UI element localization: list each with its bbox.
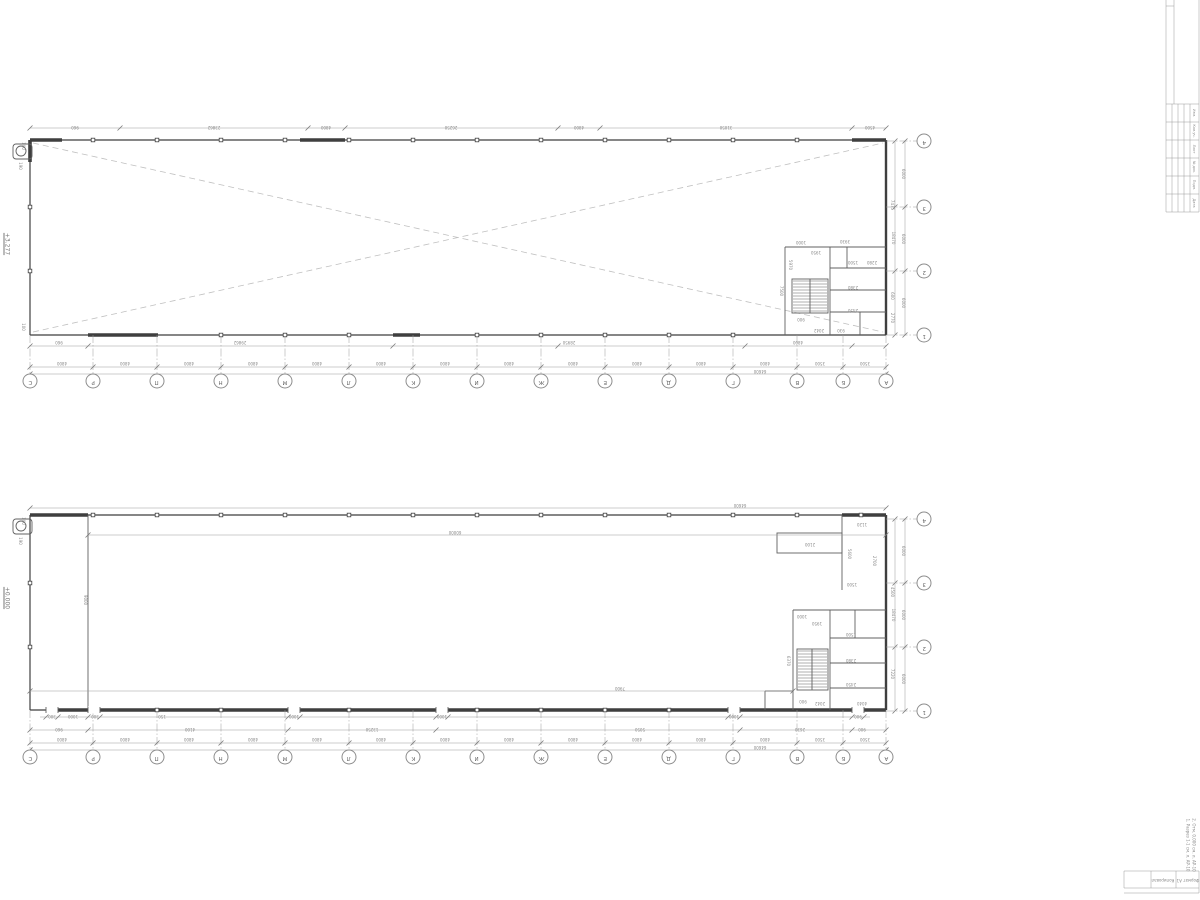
axis-number-bubble: 1 [917, 328, 932, 343]
dim-label: 4800 [574, 125, 584, 129]
dim-label: 64600 [754, 369, 767, 373]
dim-label: 2042 [814, 328, 824, 332]
dim-label: 1000 [797, 614, 807, 618]
dim-label: 28950 [563, 340, 576, 344]
dim-label: 1950 [812, 621, 822, 625]
dim-label: 2042 [815, 701, 825, 705]
axis-number-bubble: 4 [917, 134, 932, 149]
dim-label: 64600 [734, 503, 747, 507]
dim-label: 190 [18, 162, 22, 170]
dim-label: 4800 [793, 340, 803, 344]
dim-label: 4800 [696, 361, 706, 365]
dim-label: 4800 [312, 737, 322, 741]
dim-label: 100 [21, 142, 25, 150]
dim-label: 4800 [440, 361, 450, 365]
dim-label: 960 [55, 727, 63, 731]
dim-label: 1000 [437, 714, 447, 718]
axis-letter-bubble: А [879, 374, 894, 389]
axis-letter-bubble: М [278, 750, 293, 765]
axis-letter-bubble: Л [342, 750, 357, 765]
axis-letter-bubble: Р [86, 374, 101, 389]
dim-label: 60000 [449, 530, 462, 534]
dim-label: 600 [890, 292, 894, 300]
axis-letter-bubble: Г [726, 750, 741, 765]
dim-label: 31050 [720, 125, 733, 129]
dim-label: 4800 [120, 361, 130, 365]
dim-label: 930 [837, 328, 845, 332]
dim-label: 18470 [891, 609, 895, 622]
dim-label: 1500 [847, 582, 857, 586]
dim-label: 1000 [729, 714, 739, 718]
dim-label: 18470 [891, 232, 895, 245]
dim-label: 3930 [840, 239, 850, 243]
dim-label: 2280 [867, 260, 877, 264]
dim-label: 2700 [872, 556, 876, 566]
axis-letter-bubble: Б [836, 374, 851, 389]
axis-number-bubble: 3 [917, 200, 932, 215]
dim-label: 4500 [865, 125, 875, 129]
axis-letter-bubble: Ж [534, 750, 549, 765]
axis-letter-bubble: И [470, 374, 485, 389]
dim-label: 1000 [289, 714, 299, 718]
dim-label: 100 [21, 517, 25, 525]
dim-label: 2380 [848, 285, 858, 289]
axis-letter-bubble: П [150, 374, 165, 389]
axis-number-bubble: 2 [917, 640, 932, 655]
dim-label: 6000 [901, 234, 905, 244]
dim-label: 960 [55, 340, 63, 344]
dim-label: 960 [71, 125, 79, 129]
axis-letter-bubble: С [23, 750, 38, 765]
axis-letter-bubble: Р [86, 750, 101, 765]
dim-label: 1000 [796, 240, 806, 244]
axis-letter-bubble: В [790, 374, 805, 389]
elevation-mark-lower: +0.000 [4, 587, 11, 609]
dim-label: 4800 [440, 737, 450, 741]
dim-label: 9000 [83, 595, 87, 605]
dim-label: 900 [854, 714, 862, 718]
dim-label: 4800 [376, 737, 386, 741]
dim-label: 5600 [847, 549, 851, 559]
footer-cell-format: Формат А1 [1177, 878, 1200, 882]
dim-label: 4800 [184, 737, 194, 741]
axis-letter-bubble: Д [662, 750, 677, 765]
dim-label: 4040 [857, 701, 867, 705]
dim-label: 29862 [234, 340, 247, 344]
axis-letter-bubble: В [790, 750, 805, 765]
axis-number-bubble: 4 [917, 512, 932, 527]
footer-cell-kopiroval: Копировал [1152, 878, 1175, 882]
dim-label: 2450 [846, 682, 856, 686]
dim-label: 7500 [779, 286, 783, 296]
dim-label: 23862 [208, 125, 221, 129]
dim-label: Дата [1192, 198, 1196, 207]
axis-letter-bubble: И [470, 750, 485, 765]
dim-label: 4800 [312, 361, 322, 365]
dim-label: 3500 [859, 737, 869, 741]
axis-number-bubble: 1 [917, 704, 932, 719]
note-1: 1. Разрез 1-1 см. л. АР-10 [1186, 819, 1191, 872]
axis-letter-bubble: Л [342, 374, 357, 389]
drawing-sheet: 4800С4800Р4800П4800Н4800М4800Л4800К4800И… [0, 0, 1200, 900]
dim-label: 900 [797, 317, 805, 321]
dim-label: 900 [858, 727, 866, 731]
dim-label: 7900 [615, 686, 625, 690]
dim-label: 4800 [248, 737, 258, 741]
dim-label: 6000 [901, 674, 905, 684]
dim-label: 2630 [795, 727, 805, 731]
dim-label: 4800 [504, 737, 514, 741]
dim-label: Подп. [1192, 180, 1196, 191]
axis-letter-bubble: Д [662, 374, 677, 389]
axis-letter-bubble: К [406, 750, 421, 765]
dim-label: 2450 [848, 308, 858, 312]
axis-number-bubble: 2 [917, 264, 932, 279]
dim-label: 2100 [805, 542, 815, 546]
dim-label: 5050 [635, 727, 645, 731]
dim-label: Лист [1192, 145, 1196, 154]
dim-label: 6000 [901, 610, 905, 620]
note-2: 2. Отм. 0,000 см. л. АР-10 [1192, 818, 1197, 871]
dim-label: 6370 [786, 656, 790, 666]
dim-label: 3500 [815, 361, 825, 365]
dim-label: 4800 [321, 125, 331, 129]
dim-label: 300 [91, 714, 99, 718]
dim-label: 4800 [504, 361, 514, 365]
dim-label: 1120 [857, 522, 867, 526]
dim-label: 4800 [56, 361, 66, 365]
labels-layer: 4800С4800Р4800П4800Н4800М4800Л4800К4800И… [0, 0, 1200, 900]
axis-letter-bubble: Г [726, 374, 741, 389]
dim-label: 6000 [901, 546, 905, 556]
dim-label: 4800 [184, 361, 194, 365]
dim-label: 13250 [366, 727, 379, 731]
dim-label: 7220 [890, 669, 894, 679]
dim-label: Кол.уч. [1192, 124, 1196, 137]
axis-letter-bubble: Е [598, 750, 613, 765]
dim-label: Изм. [1192, 109, 1196, 117]
dim-label: 4800 [632, 737, 642, 741]
axis-letter-bubble: П [150, 750, 165, 765]
dim-label: 2380 [846, 658, 856, 662]
axis-letter-bubble: К [406, 374, 421, 389]
axis-letter-bubble: Ж [534, 374, 549, 389]
dim-label: 4800 [568, 737, 578, 741]
dim-label: 64600 [754, 745, 767, 749]
dim-label: 4800 [760, 737, 770, 741]
dim-label: 300 [48, 714, 56, 718]
dim-label: 1950 [811, 250, 821, 254]
dim-label: 4800 [120, 737, 130, 741]
dim-label: 4800 [696, 737, 706, 741]
dim-label: 2770 [890, 313, 894, 323]
dim-label: 1500 [846, 632, 856, 636]
dim-label: 3500 [859, 361, 869, 365]
dim-label: 1000 [68, 714, 78, 718]
dim-label: 6000 [901, 298, 905, 308]
axis-letter-bubble: М [278, 374, 293, 389]
dim-label: 4800 [56, 737, 66, 741]
axis-letter-bubble: Б [836, 750, 851, 765]
dim-label: 5970 [788, 260, 792, 270]
axis-letter-bubble: А [879, 750, 894, 765]
dim-label: 4800 [632, 361, 642, 365]
axis-letter-bubble: Н [214, 750, 229, 765]
dim-label: 4800 [248, 361, 258, 365]
dim-label: 150 [158, 714, 166, 718]
dim-label: 4100 [185, 727, 195, 731]
axis-letter-bubble: Е [598, 374, 613, 389]
dim-label: 4800 [376, 361, 386, 365]
dim-label: 26250 [445, 125, 458, 129]
dim-label: 4800 [568, 361, 578, 365]
axis-letter-bubble: С [23, 374, 38, 389]
dim-label: 900 [799, 699, 807, 703]
dim-label: 4500 [890, 587, 894, 597]
dim-label: 7475 [890, 200, 894, 210]
dim-label: 1500 [848, 260, 858, 264]
dim-label: 100 [21, 323, 25, 331]
axis-number-bubble: 3 [917, 576, 932, 591]
axis-letter-bubble: Н [214, 374, 229, 389]
elevation-mark-upper: +3.277 [4, 233, 11, 255]
dim-label: 6000 [901, 169, 905, 179]
dim-label: 3500 [815, 737, 825, 741]
dim-label: 190 [18, 537, 22, 545]
dim-label: 4800 [760, 361, 770, 365]
dim-label: № док. [1192, 161, 1196, 174]
